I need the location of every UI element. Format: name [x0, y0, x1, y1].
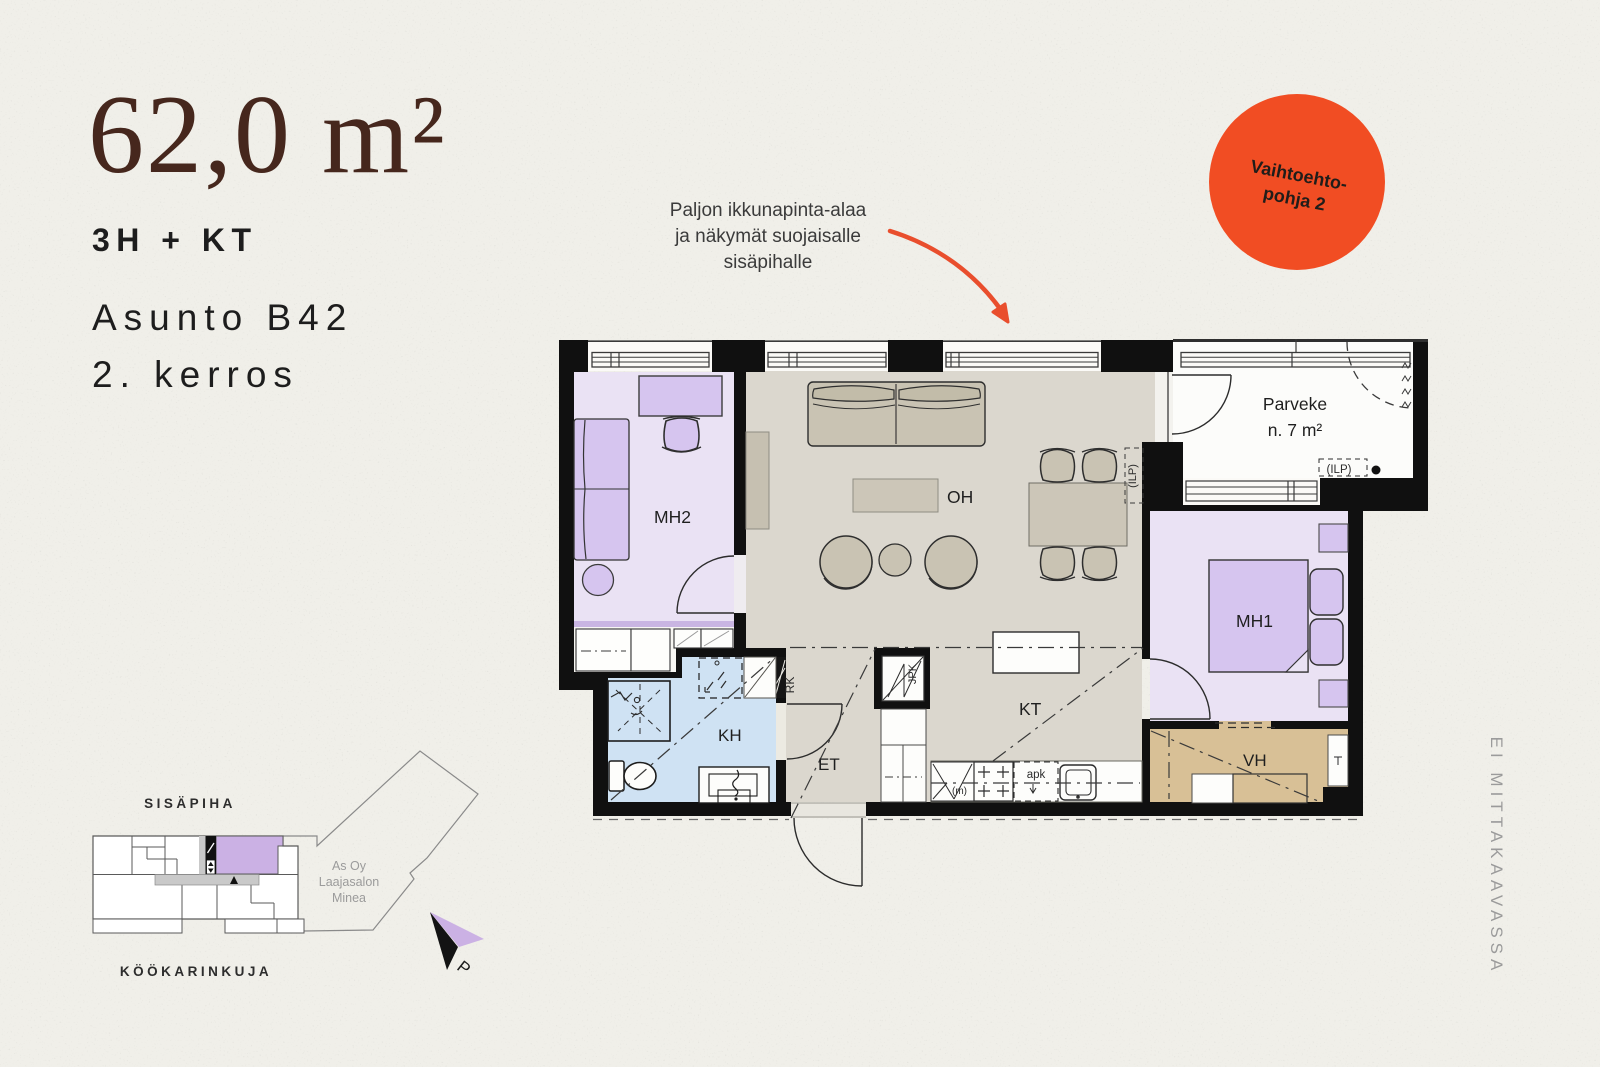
svg-text:Asunto B42: Asunto B42 — [92, 297, 353, 338]
svg-text:VH: VH — [1243, 751, 1267, 770]
svg-text:MH1: MH1 — [1236, 611, 1273, 631]
svg-text:RK: RK — [783, 677, 797, 694]
svg-text:KH: KH — [718, 726, 742, 745]
svg-text:(ILP): (ILP) — [1127, 464, 1139, 488]
svg-text:As Oy: As Oy — [332, 859, 367, 873]
svg-text:ja näkymät suojaisalle: ja näkymät suojaisalle — [674, 226, 861, 247]
svg-text:apk: apk — [1027, 769, 1046, 781]
svg-text:EI MITTAKAAVASSA: EI MITTAKAAVASSA — [1487, 737, 1506, 976]
svg-text:Paljon ikkunapinta-alaa: Paljon ikkunapinta-alaa — [670, 200, 867, 221]
svg-text:3H + KT: 3H + KT — [92, 222, 258, 258]
svg-text:n. 7 m²: n. 7 m² — [1268, 420, 1323, 440]
svg-text:ET: ET — [818, 755, 840, 774]
svg-text:KT: KT — [1019, 699, 1042, 719]
svg-text:2. kerros: 2. kerros — [92, 354, 299, 395]
svg-text:SISÄPIHA: SISÄPIHA — [144, 796, 236, 811]
svg-text:(ILP): (ILP) — [1327, 464, 1352, 476]
svg-text:KÖÖKARINKUJA: KÖÖKARINKUJA — [120, 964, 272, 979]
svg-text:Minea: Minea — [332, 891, 366, 905]
svg-text:(m): (m) — [952, 786, 967, 797]
svg-text:sisäpihalle: sisäpihalle — [724, 252, 813, 273]
svg-text:Laajasalon: Laajasalon — [319, 875, 380, 889]
svg-text:MH2: MH2 — [654, 507, 691, 527]
svg-text:62,0 m²: 62,0 m² — [88, 73, 447, 197]
svg-text:JPK: JPK — [907, 663, 919, 684]
svg-text:Parveke: Parveke — [1263, 394, 1327, 414]
svg-text:OH: OH — [947, 487, 973, 507]
